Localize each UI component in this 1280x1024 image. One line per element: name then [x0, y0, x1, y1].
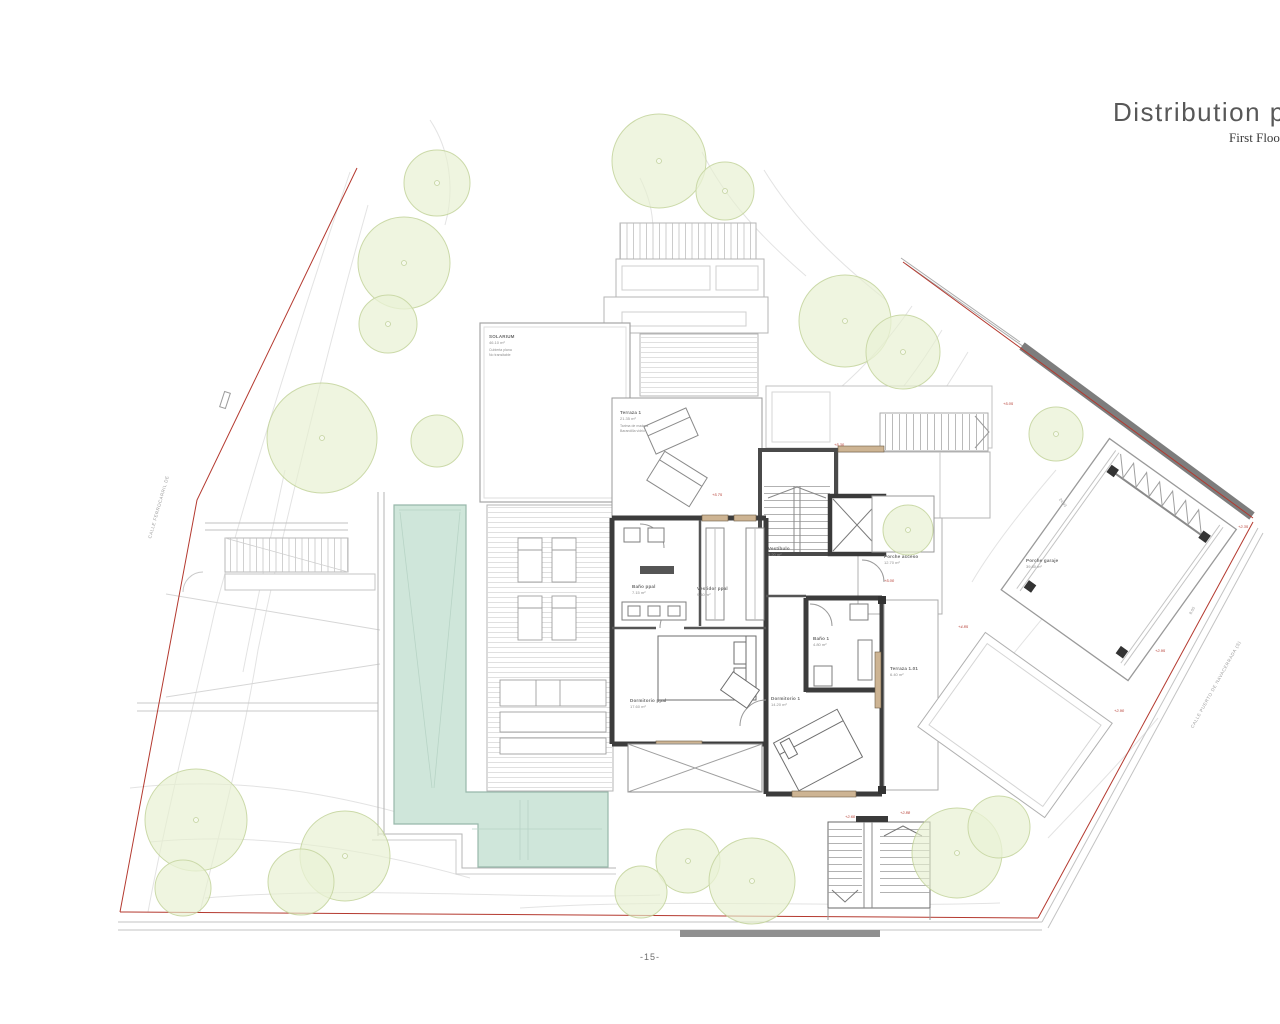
room-label-terraza-d1: Terraza 1.01 6.40 m²: [890, 666, 918, 677]
tree: [155, 860, 211, 916]
sheet-subtitle: First Floor: [1229, 130, 1280, 146]
level-marker: +2.90: [1114, 708, 1124, 713]
level-marker: +2.60: [845, 814, 855, 819]
upper-stair-strip: [640, 334, 758, 396]
room-label-dormitorio-ppal: Dormitorio ppal 17.60 m²: [630, 698, 667, 709]
entrance-stair: [880, 413, 989, 451]
room-label-bano-ppal: Baño ppal 7.15 m²: [632, 584, 656, 595]
bottom-walkway-band: [680, 930, 880, 937]
room-label-terraza1: Terraza 1 21.35 m² Tarima de madera Bara…: [620, 410, 648, 433]
lower-terrace: [628, 744, 762, 792]
dorm1-terrace: [878, 596, 938, 794]
room-label-vestidor: Vestidor ppal 9.40 m²: [697, 586, 728, 597]
tree: [615, 866, 667, 918]
level-marker: +2.35: [1238, 524, 1248, 529]
page-number: -15-: [610, 952, 690, 962]
level-marker: +2.95: [1155, 648, 1165, 653]
garden-terraces: [137, 523, 380, 711]
site-plan-drawing: [0, 0, 1280, 1024]
pergola: [604, 223, 768, 333]
level-marker: +5.05: [1003, 401, 1013, 406]
level-marker: +5.00: [884, 578, 894, 583]
level-marker: +2.88: [900, 810, 910, 815]
room-label-dormitorio1: Dormitorio 1 14.20 m²: [771, 696, 800, 707]
level-marker: +4.85: [958, 624, 968, 629]
level-marker: +5.75: [712, 492, 722, 497]
level-marker: +5.30: [834, 442, 844, 447]
room-label-bano1: Baño 1 4.80 m²: [813, 636, 829, 647]
bed-ppal: [658, 636, 759, 708]
tree: [968, 796, 1030, 858]
plan-sheet: Distribution plan First Floor -15- CALLE…: [0, 0, 1280, 1024]
room-label-vestibulo: Vestíbulo 5.20 m²: [768, 546, 790, 557]
wood-deck: [487, 505, 613, 791]
survey-marker: [220, 391, 231, 408]
room-label-solarium: SOLARIUM 46.10 m² Cubierta plana No tran…: [489, 334, 515, 357]
tree: [411, 415, 463, 467]
lower-right-terrace: [918, 632, 1112, 817]
room-label-porche-acceso: Porche acceso 12.70 m²: [884, 554, 918, 565]
staircase: [760, 450, 836, 554]
room-label-porche-garaje: Porche garaje 39.80 m²: [1026, 558, 1058, 569]
sheet-title: Distribution plan: [1113, 97, 1280, 128]
tree: [268, 849, 334, 915]
